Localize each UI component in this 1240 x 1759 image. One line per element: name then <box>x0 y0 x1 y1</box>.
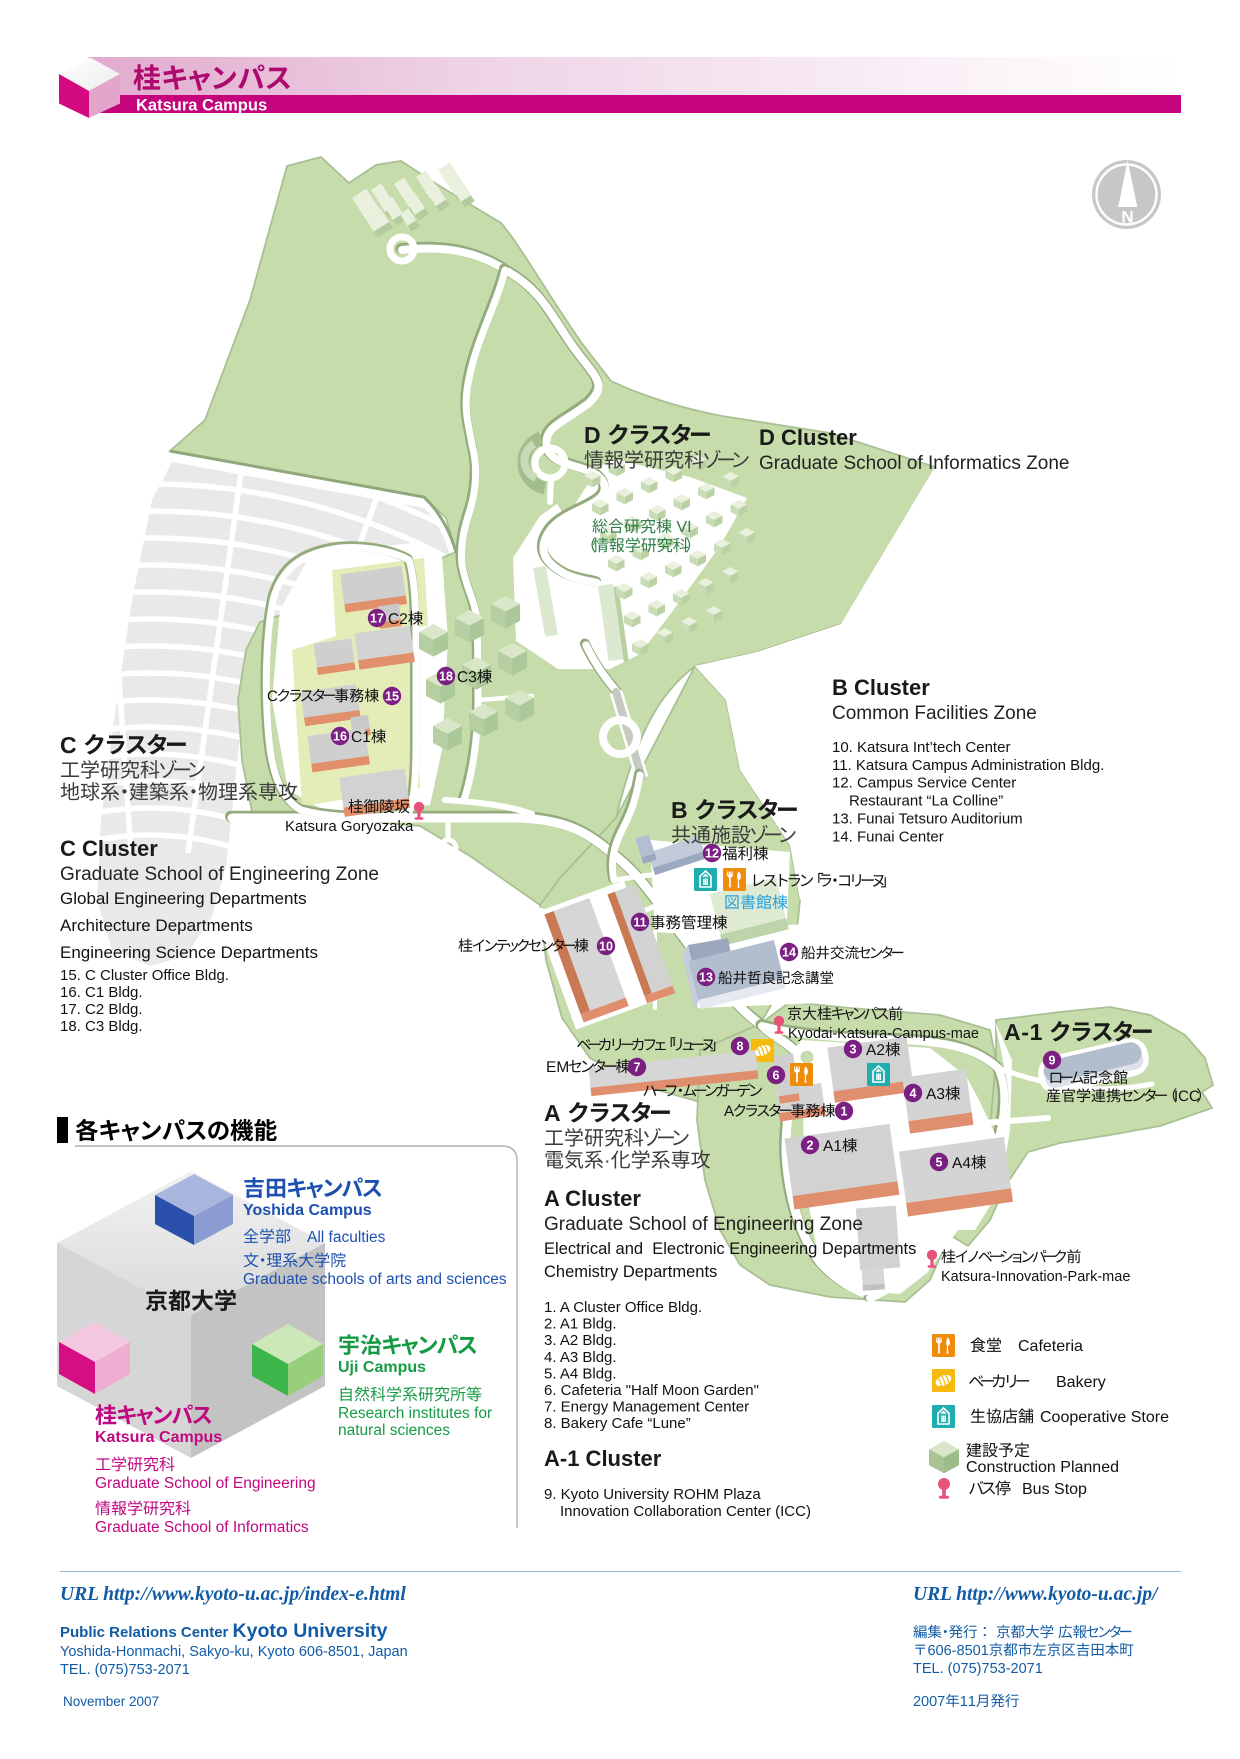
svg-text:Graduate School of Engineering: Graduate School of Engineering <box>95 1475 316 1492</box>
svg-text:8. Bakery Cafe “Lune”: 8. Bakery Cafe “Lune” <box>544 1415 691 1432</box>
svg-text:Construction Planned: Construction Planned <box>966 1459 1119 1476</box>
svg-text:Graduate School of Informatics: Graduate School of Informatics Zone <box>759 453 1070 474</box>
svg-text:TEL. (075)753-2071: TEL. (075)753-2071 <box>913 1661 1043 1677</box>
svg-text:Restaurant “La Colline”: Restaurant “La Colline” <box>849 793 1003 810</box>
svg-text:15: 15 <box>385 689 399 703</box>
svg-text:16: 16 <box>333 729 347 743</box>
svg-text:Research institutes for: Research institutes for <box>338 1405 492 1422</box>
svg-text:4: 4 <box>910 1086 917 1100</box>
svg-text:N: N <box>1121 208 1133 227</box>
svg-text:Katsura Campus: Katsura Campus <box>95 1429 222 1446</box>
svg-text:Katsura Goryozaka: Katsura Goryozaka <box>285 818 414 835</box>
svg-text:Bakery: Bakery <box>1056 1374 1106 1391</box>
svg-text:18: 18 <box>439 669 453 683</box>
svg-text:5: 5 <box>936 1155 943 1169</box>
svg-text:6: 6 <box>773 1068 780 1082</box>
svg-text:Cooperative Store: Cooperative Store <box>1040 1409 1169 1426</box>
svg-text:8: 8 <box>737 1039 744 1053</box>
svg-text:3: 3 <box>850 1042 857 1056</box>
svg-text:1: 1 <box>841 1104 848 1118</box>
svg-text:Cafeteria: Cafeteria <box>1018 1338 1083 1355</box>
svg-text:TEL. (075)753-2071: TEL. (075)753-2071 <box>60 1662 190 1678</box>
svg-text:5. A4 Bldg.: 5. A4 Bldg. <box>544 1365 617 1382</box>
svg-text:14. Funai Center: 14. Funai Center <box>832 828 944 845</box>
svg-text:D Cluster: D Cluster <box>759 425 857 450</box>
svg-text:17: 17 <box>370 611 384 625</box>
svg-text:Katsura Campus: Katsura Campus <box>136 97 267 115</box>
svg-text:Electrical and Electronic Eng: Electrical and Electronic Engineering De… <box>544 1240 916 1258</box>
svg-text:12: 12 <box>705 846 719 860</box>
svg-text:14: 14 <box>782 945 796 959</box>
svg-text:Kyodai-Katsura-Campus-mae: Kyodai-Katsura-Campus-mae <box>788 1026 979 1042</box>
svg-text:7: 7 <box>634 1060 641 1074</box>
svg-text:9: 9 <box>1049 1053 1056 1067</box>
svg-text:Graduate School of Informatics: Graduate School of Informatics <box>95 1519 309 1536</box>
svg-text:Graduate School of Engineering: Graduate School of Engineering Zone <box>60 864 379 885</box>
svg-text:10. Katsura Int’tech Center: 10. Katsura Int’tech Center <box>832 739 1010 756</box>
svg-text:17. C2 Bldg.: 17. C2 Bldg. <box>60 1001 143 1018</box>
svg-text:16. C1 Bldg.: 16. C1 Bldg. <box>60 984 143 1001</box>
svg-text:Graduate School of Engineering: Graduate School of Engineering Zone <box>544 1214 863 1235</box>
svg-text:2. A1 Bldg.: 2. A1 Bldg. <box>544 1316 617 1333</box>
svg-text:All faculties: All faculties <box>307 1229 386 1246</box>
svg-text:2: 2 <box>807 1138 814 1152</box>
svg-text:Public Relations Center Kyo: Public Relations Center Kyoto University <box>60 1620 388 1642</box>
svg-text:Architecture Departments: Architecture Departments <box>60 916 253 935</box>
svg-text:13: 13 <box>699 970 713 984</box>
svg-text:URL http://www.kyoto-u.ac.jp/: URL http://www.kyoto-u.ac.jp/ <box>913 1584 1159 1605</box>
svg-text:Innovation Collaboration Cente: Innovation Collaboration Center (ICC) <box>560 1503 811 1520</box>
svg-text:7. Energy Management Center: 7. Energy Management Center <box>544 1399 749 1416</box>
svg-text:12. Campus Service Center: 12. Campus Service Center <box>832 775 1016 792</box>
svg-text:Engineering Science Department: Engineering Science Departments <box>60 943 318 962</box>
svg-text:B Cluster: B Cluster <box>832 675 930 700</box>
svg-text:A-1 Cluster: A-1 Cluster <box>544 1446 662 1471</box>
svg-text:10: 10 <box>599 939 613 953</box>
svg-text:November 2007: November 2007 <box>63 1694 159 1709</box>
svg-text:Katsura-Innovation-Park-mae: Katsura-Innovation-Park-mae <box>941 1269 1130 1285</box>
svg-text:1. A Cluster Office Bldg.: 1. A Cluster Office Bldg. <box>544 1299 702 1316</box>
svg-text:Global Engineering Departments: Global Engineering Departments <box>60 889 307 908</box>
svg-text:natural sciences: natural sciences <box>338 1422 450 1439</box>
svg-text:URL http://www.kyoto-u.ac.jp/: URL http://www.kyoto-u.ac.jp/index-e.htm… <box>60 1584 406 1605</box>
svg-text:Chemistry Departments: Chemistry Departments <box>544 1263 717 1281</box>
svg-text:9. Kyoto University ROHM Plaza: 9. Kyoto University ROHM Plaza <box>544 1486 761 1503</box>
svg-text:Common Facilities Zone: Common Facilities Zone <box>832 703 1037 724</box>
svg-text:6. Cafeteria "Half Moon Garden: 6. Cafeteria "Half Moon Garden" <box>544 1382 759 1399</box>
svg-text:15. C Cluster Office Bldg.: 15. C Cluster Office Bldg. <box>60 967 229 984</box>
svg-text:11: 11 <box>633 915 646 929</box>
svg-text:A Cluster: A Cluster <box>544 1186 641 1211</box>
svg-text:18. C3 Bldg.: 18. C3 Bldg. <box>60 1018 143 1035</box>
svg-text:13. Funai Tetsuro Auditorium: 13. Funai Tetsuro Auditorium <box>832 810 1023 827</box>
svg-text:Bus Stop: Bus Stop <box>1022 1481 1087 1498</box>
svg-text:Uji Campus: Uji Campus <box>338 1359 426 1376</box>
svg-text:11. Katsura Campus Administrat: 11. Katsura Campus Administration Bldg. <box>832 757 1104 774</box>
svg-text:4. A3 Bldg.: 4. A3 Bldg. <box>544 1349 617 1366</box>
svg-text:Yoshida Campus: Yoshida Campus <box>243 1202 372 1219</box>
svg-text:3. A2 Bldg.: 3. A2 Bldg. <box>544 1332 617 1349</box>
svg-text:C Cluster: C Cluster <box>60 836 158 861</box>
svg-text:Graduate schools of arts and s: Graduate schools of arts and sciences <box>243 1271 507 1288</box>
svg-text:Yoshida-Honmachi, Sakyo-ku, Ky: Yoshida-Honmachi, Sakyo-ku, Kyoto 606-85… <box>60 1644 408 1660</box>
